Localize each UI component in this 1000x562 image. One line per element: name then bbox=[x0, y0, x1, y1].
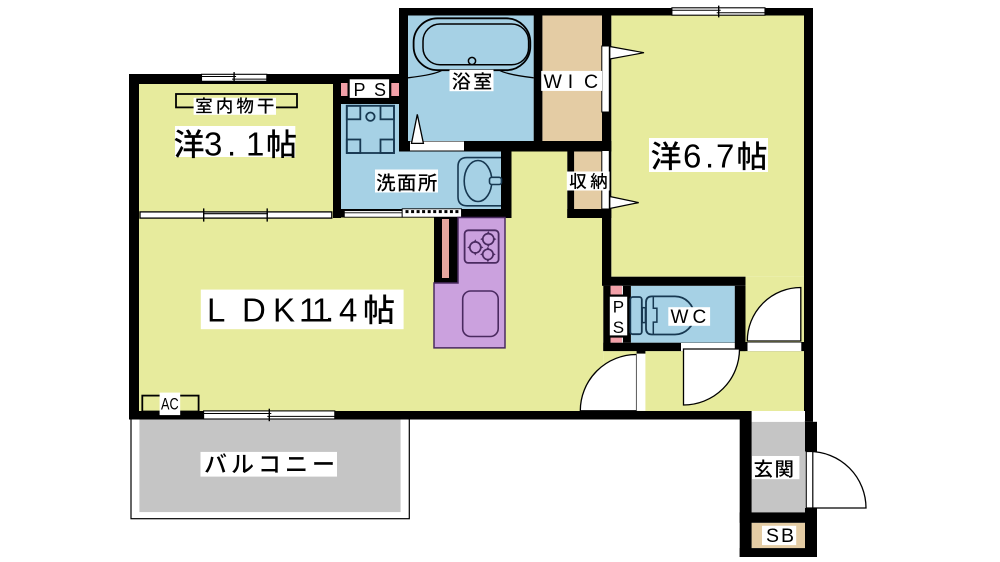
svg-text:WIC: WIC bbox=[544, 71, 599, 93]
svg-text:WC: WC bbox=[671, 307, 707, 328]
svg-text:6.7: 6.7 bbox=[683, 138, 734, 175]
svg-text:P: P bbox=[613, 298, 624, 317]
svg-text:AC: AC bbox=[161, 394, 179, 413]
svg-text:3.1: 3.1 bbox=[204, 126, 264, 163]
svg-text:S: S bbox=[613, 318, 624, 337]
